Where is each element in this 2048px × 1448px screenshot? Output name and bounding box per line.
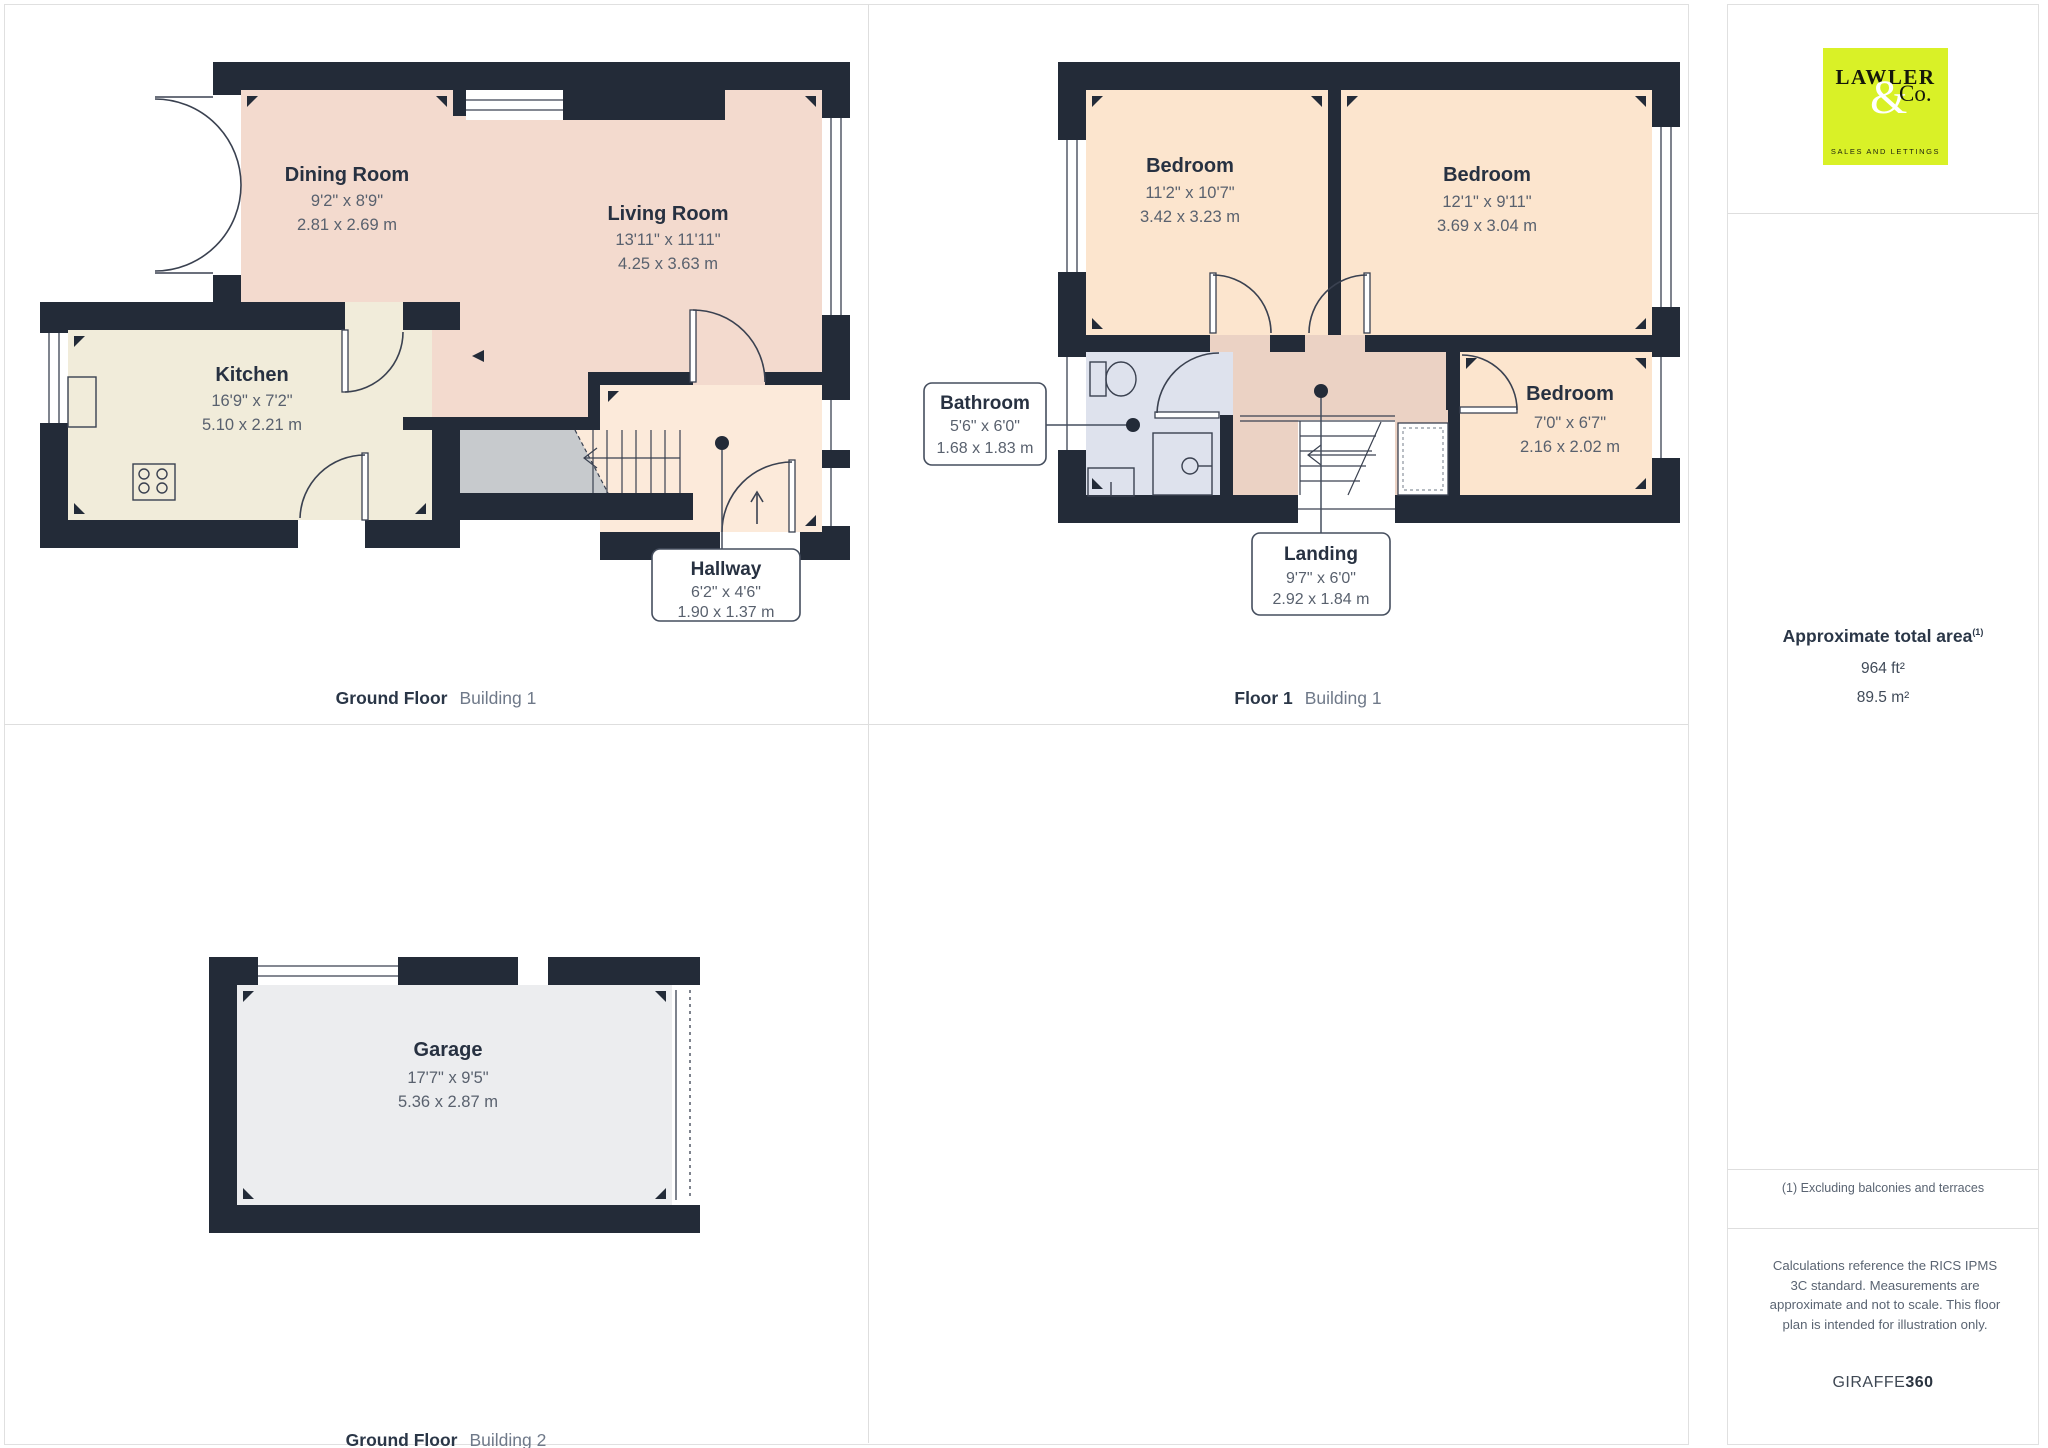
room-dims-imperial: 6'2" x 4'6" [691,584,761,601]
room-label: Bedroom [1526,383,1614,405]
room-dims-imperial: 12'1" x 9'11" [1442,193,1531,211]
wall-bedroom3-left [1446,352,1460,410]
plan-ground-floor-b1: Dining Room 9'2" x 8'9" 2.81 x 2.69 m Li… [40,62,850,621]
door-threshold-kitchen [345,302,403,330]
wall [213,62,850,90]
caption-floor1-b1: Floor 1Building 1 [1008,688,1608,709]
wall-bedrooms-bottom-a [1058,335,1210,352]
window-right-lower [1652,357,1680,458]
wall-bedrooms-bottom-c [1365,335,1652,352]
wall-kitchen-bottom [40,520,460,548]
door-leaf [1460,407,1517,413]
room-dims-imperial: 13'11" x 11'11" [615,231,720,249]
floorplan-drawing: Dining Room 9'2" x 8'9" 2.81 x 2.69 m Li… [0,0,2048,1448]
room-dims-imperial: 7'0" x 6'7" [1534,414,1606,432]
window-left-upper [1058,140,1086,272]
total-area-superscript: (1) [1972,627,1983,637]
room-dims-metric: 1.68 x 1.83 m [937,440,1034,457]
room-label: Bathroom [940,393,1030,414]
wall-kitchen-top-a [40,302,345,330]
room-dims-imperial: 16'9" x 7'2" [211,392,292,410]
room-label: Bedroom [1146,155,1234,177]
room-label: Living Room [607,203,728,225]
door-leaf [789,460,795,532]
patio-door-opening [213,95,241,275]
disclaimer-text: Calculations reference the RICS IPMS 3C … [1766,1256,2004,1334]
window-right-upper [1652,127,1680,307]
room-bathroom-floor [1086,352,1233,495]
wall-understairs-bottom [460,493,693,520]
door-leaf [1155,412,1219,418]
wall-bedroom-divider [1328,90,1341,335]
wall-kitchen-top-b [403,302,460,330]
room-label: Dining Room [285,164,409,186]
wall-hall-top-b [765,372,822,385]
room-dims-metric: 5.36 x 2.87 m [398,1093,498,1111]
landing-door-gap-2 [1305,335,1365,352]
agency-logo: LAWLER & Co. SALES AND LETTINGS [1823,48,1948,165]
garage-opening-top [518,957,548,985]
window-left-lower [1058,357,1086,450]
room-dims-metric: 2.92 x 1.84 m [1273,591,1370,608]
total-area-title: Approximate total area(1) [1729,626,2037,647]
total-area-metric: 89.5 m² [1729,689,2037,707]
room-bedroom2-floor [1341,90,1652,335]
total-area-title-text: Approximate total area [1783,626,1973,646]
plan-ground-floor-b2: Garage 17'7" x 9'5" 5.36 x 2.87 m [209,957,700,1233]
room-label: Hallway [691,559,762,580]
kitchen-rear-door-opening [298,520,365,548]
door-leaf [362,453,368,520]
window-kitchen-left [40,333,68,423]
caption-ground-floor-b2: Ground FloorBuilding 2 [146,1430,746,1448]
room-dims-metric: 3.42 x 3.23 m [1140,208,1240,226]
room-dims-imperial: 9'2" x 8'9" [311,192,383,210]
stairs-floor-f1 [1298,420,1395,495]
caption-floor-name: Ground Floor [346,1430,458,1448]
door-leaf [342,330,348,392]
caption-ground-floor-b1: Ground FloorBuilding 1 [136,688,736,709]
brand-light: GIRAFFE [1832,1374,1905,1391]
room-label: Garage [414,1039,483,1061]
window-hall-right-1 [822,400,850,450]
room-label: Bedroom [1443,164,1531,186]
wall-bathroom-right [1220,415,1233,495]
room-dining-living-opening [453,112,466,302]
caption-building-name: Building 1 [459,688,536,708]
caption-floor-name: Ground Floor [336,688,448,708]
wall-left [1058,62,1086,523]
window-living-right [822,118,850,315]
wall-top [1058,62,1680,90]
wall-living-bottom [403,417,600,430]
door-leaf [1210,273,1216,333]
caption-floor-name: Floor 1 [1234,688,1292,708]
hallway-leader-dot [715,436,729,450]
door-leaf [1364,273,1370,333]
room-dims-metric: 4.25 x 3.63 m [618,255,718,273]
landing-leader-dot [1314,384,1328,398]
logo-co: Co. [1899,81,1932,107]
room-dims-imperial: 17'7" x 9'5" [407,1069,488,1087]
landing-door-gap-1 [1210,335,1270,352]
garage-window-top [258,957,398,985]
caption-building-name: Building 2 [469,1430,546,1448]
room-dims-imperial: 11'2" x 10'7" [1145,184,1234,202]
caption-building-name: Building 1 [1305,688,1382,708]
room-dims-metric: 1.90 x 1.37 m [678,604,775,621]
storage-cupboard [1398,423,1448,495]
room-dims-imperial: 9'7" x 6'0" [1286,570,1356,587]
plan-floor1-b1: Bedroom 11'2" x 10'7" 3.42 x 3.23 m Bedr… [924,62,1680,615]
room-label: Kitchen [215,364,288,386]
total-area-imperial: 964 ft² [1729,660,2037,678]
wall-block [563,90,725,120]
room-dims-metric: 2.81 x 2.69 m [297,216,397,234]
wall-kitchen-right [432,430,460,520]
door-leaf [690,310,696,382]
room-label: Landing [1284,544,1358,565]
wall-hall-top-a [600,372,693,385]
giraffe360-brand: GIRAFFE360 [1729,1374,2037,1392]
wall-connector [588,372,600,430]
room-dims-metric: 3.69 x 3.04 m [1437,217,1537,235]
area-footnote: (1) Excluding balconies and terraces [1745,1181,2021,1195]
wall-storage-right [1448,410,1460,495]
room-living-floor-top [725,90,822,120]
room-dims-metric: 5.10 x 2.21 m [202,416,302,434]
room-dims-metric: 2.16 x 2.02 m [1520,438,1620,456]
window-hall-right-2 [822,468,850,526]
wall-bedrooms-bottom-b [1270,335,1305,352]
wall-stub [453,90,466,116]
brand-bold: 360 [1905,1374,1933,1391]
floorplan-page: Dining Room 9'2" x 8'9" 2.81 x 2.69 m Li… [0,0,2048,1448]
room-dims-imperial: 5'6" x 6'0" [950,418,1020,435]
logo-tagline: SALES AND LETTINGS [1823,147,1948,156]
window-top [466,90,563,120]
bathroom-leader-dot [1126,418,1140,432]
